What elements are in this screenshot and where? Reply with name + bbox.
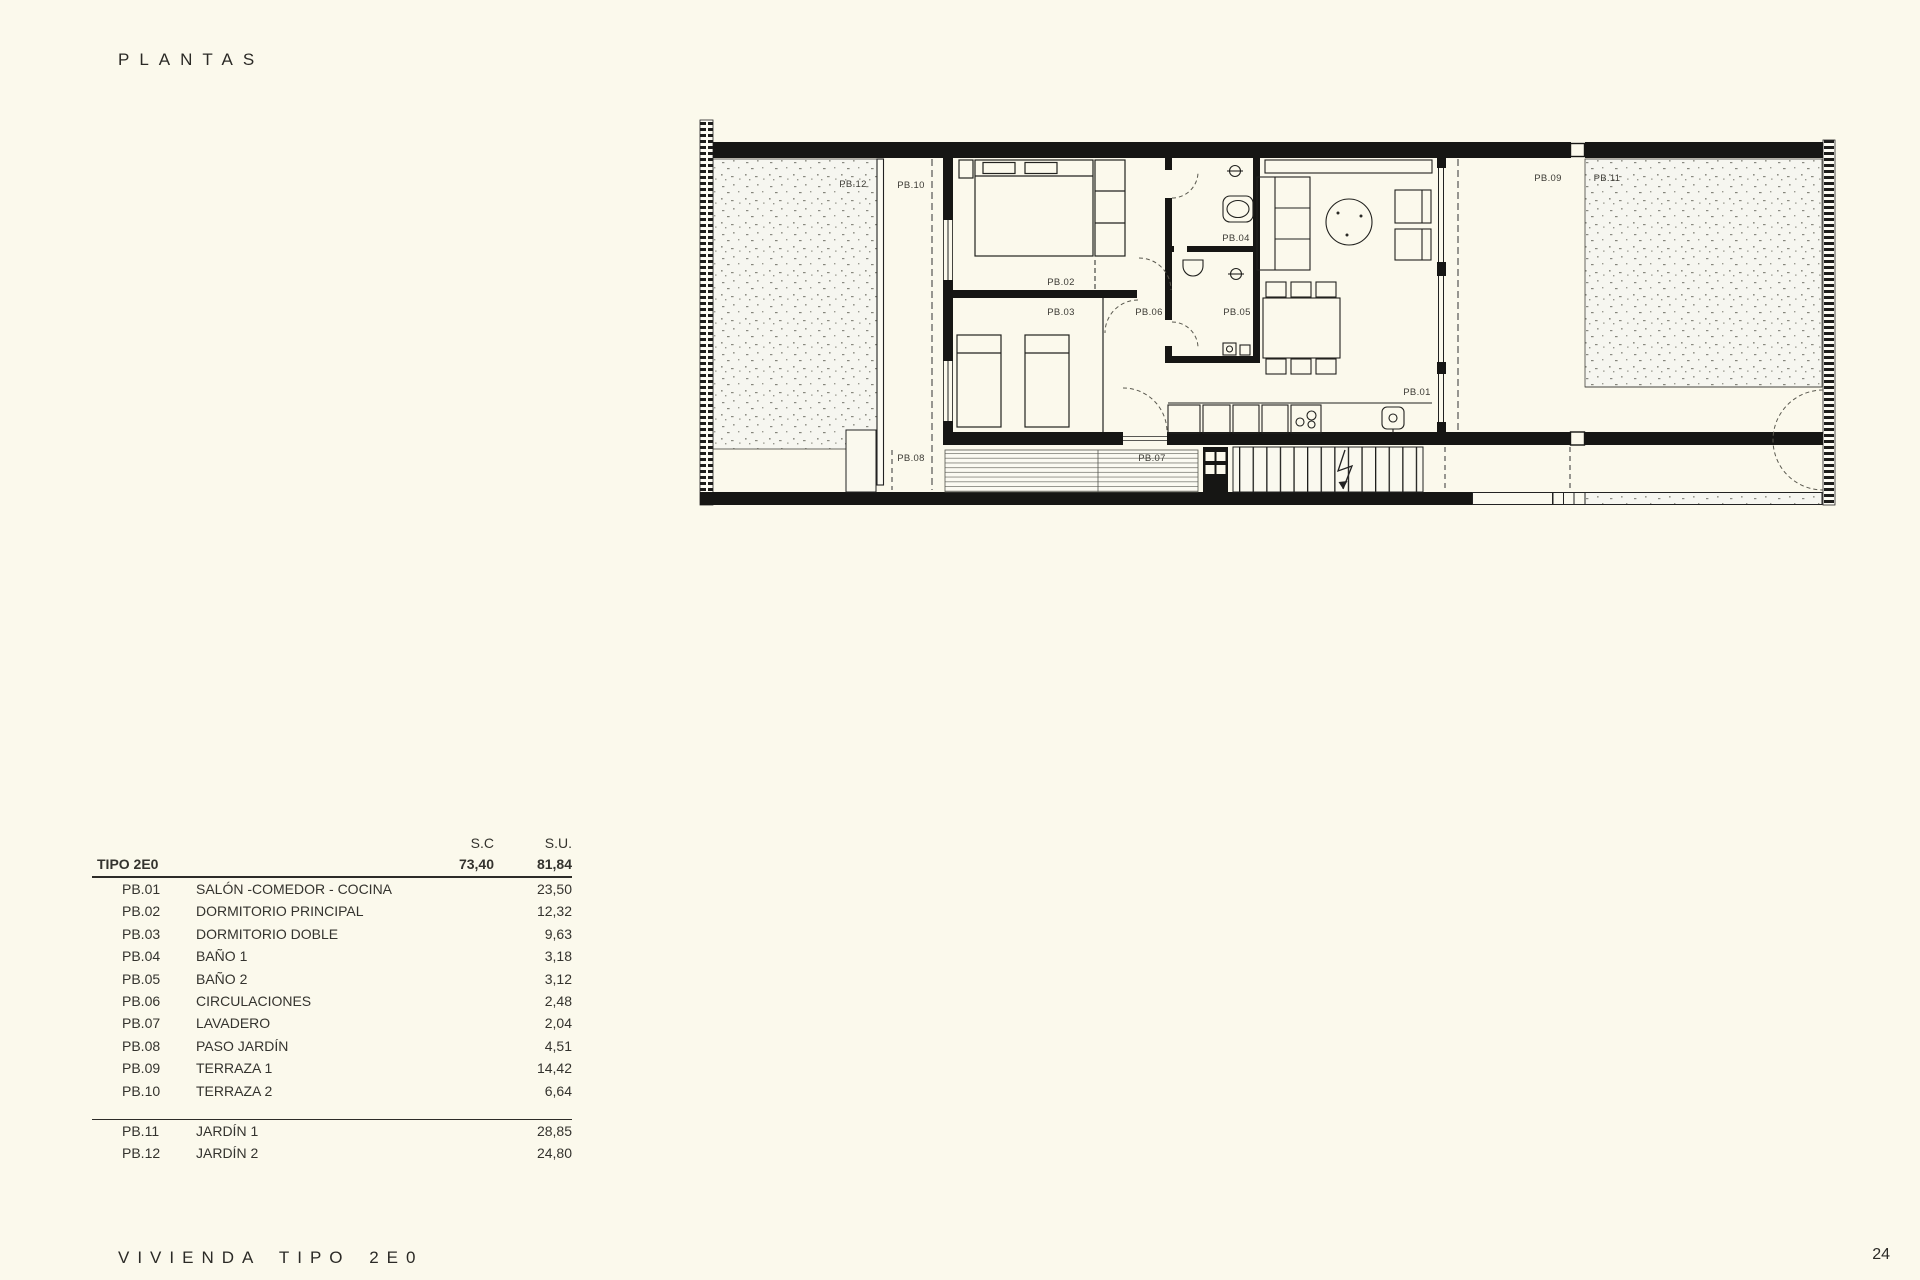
bottom-wall xyxy=(700,492,1472,505)
room-code: PB.01 xyxy=(92,878,196,900)
column-header-su: S.U. xyxy=(494,833,572,853)
room-su: 28,85 xyxy=(494,1120,572,1142)
room-su: 6,64 xyxy=(494,1080,572,1102)
room-sc xyxy=(404,1120,494,1142)
bed-double xyxy=(959,160,1093,256)
room-sc xyxy=(404,1080,494,1102)
bottom-strip xyxy=(1473,493,1553,505)
spacer xyxy=(92,833,404,853)
room-name: PASO JARDÍN xyxy=(196,1035,404,1057)
table-row: PB.03 DORMITORIO DOBLE 9,63 xyxy=(92,923,572,945)
planter xyxy=(846,430,876,492)
living-furniture xyxy=(1257,160,1432,374)
room-code: PB.10 xyxy=(92,1080,196,1102)
floor-plan-drawing: PB.12 PB.10 PB.02 PB.03 PB.06 PB.04 PB.0… xyxy=(695,110,1840,515)
room-name: BAÑO 2 xyxy=(196,968,404,990)
page-title: PLANTAS xyxy=(118,50,264,70)
table-row: PB.07 LAVADERO 2,04 xyxy=(92,1012,572,1034)
room-name: TERRAZA 1 xyxy=(196,1057,404,1079)
room-code: PB.06 xyxy=(92,990,196,1012)
room-su: 3,12 xyxy=(494,968,572,990)
house-left-wall xyxy=(943,158,953,445)
entry-door-opening xyxy=(1123,432,1167,445)
room-label-pb02: PB.02 xyxy=(1047,277,1074,288)
pillar-top xyxy=(1571,144,1585,157)
table-row: PB.06 CIRCULACIONES 2,48 xyxy=(92,990,572,1012)
room-code: PB.04 xyxy=(92,945,196,967)
room-sc xyxy=(404,1142,494,1164)
room-sc xyxy=(404,1035,494,1057)
floor-plan-svg: PB.12 PB.10 PB.02 PB.03 PB.06 PB.04 PB.0… xyxy=(695,110,1840,515)
room-code: PB.08 xyxy=(92,1035,196,1057)
closet xyxy=(1095,160,1125,256)
column-header-sc: S.C xyxy=(404,833,494,853)
room-name: DORMITORIO PRINCIPAL xyxy=(196,900,404,922)
room-code: PB.03 xyxy=(92,923,196,945)
room-label-pb03: PB.03 xyxy=(1047,307,1074,318)
type-sc-total: 73,40 xyxy=(404,853,494,876)
garden-terrace-wall xyxy=(877,159,884,485)
table-row: PB.02 DORMITORIO PRINCIPAL 12,32 xyxy=(92,900,572,922)
room-name: BAÑO 1 xyxy=(196,945,404,967)
room-su: 23,50 xyxy=(494,878,572,900)
room-su: 24,80 xyxy=(494,1142,572,1164)
room-code: PB.05 xyxy=(92,968,196,990)
room-name: TERRAZA 2 xyxy=(196,1080,404,1102)
room-label-pb07: PB.07 xyxy=(1138,453,1165,464)
table-row: PB.04 BAÑO 1 3,18 xyxy=(92,945,572,967)
bottom-strip-garden xyxy=(1585,493,1822,505)
room-sc xyxy=(404,900,494,922)
document-page: { "page": { "title": "PLANTAS", "footer_… xyxy=(0,0,1920,1280)
area-schedule-table: S.C S.U. TIPO 2E0 73,40 81,84 PB.01 SALÓ… xyxy=(92,833,572,1165)
exterior-stairs xyxy=(1233,447,1423,492)
table-row: PB.01 SALÓN -COMEDOR - COCINA 23,50 xyxy=(92,878,572,900)
type-name: TIPO 2E0 xyxy=(92,853,404,876)
garden-2-area xyxy=(713,159,877,449)
room-code: PB.02 xyxy=(92,900,196,922)
room-label-pb06: PB.06 xyxy=(1135,307,1162,318)
table-row: PB.10 TERRAZA 2 6,64 xyxy=(92,1080,572,1102)
top-wall-right xyxy=(1585,142,1823,158)
top-wall xyxy=(713,142,1571,158)
room-name: LAVADERO xyxy=(196,1012,404,1034)
room-name: JARDÍN 1 xyxy=(196,1120,404,1142)
right-fence xyxy=(1823,140,1835,505)
room-label-pb09: PB.09 xyxy=(1534,173,1561,184)
bottom-strip-cells xyxy=(1553,493,1585,505)
room-code: PB.09 xyxy=(92,1057,196,1079)
table-row: PB.11 JARDÍN 1 28,85 xyxy=(92,1120,572,1142)
beds-single xyxy=(957,335,1069,427)
room-sc xyxy=(404,990,494,1012)
room-su: 4,51 xyxy=(494,1035,572,1057)
bedroom-divider-wall xyxy=(943,290,1137,298)
room-sc xyxy=(404,945,494,967)
bath1-fixtures xyxy=(1223,166,1253,223)
room-sc xyxy=(404,968,494,990)
garden-1-area xyxy=(1585,159,1822,387)
room-label-pb11: PB.11 xyxy=(1594,173,1621,184)
room-label-pb04: PB.04 xyxy=(1222,233,1249,244)
type-su-total: 81,84 xyxy=(494,853,572,876)
window-wall-segment xyxy=(1203,447,1228,492)
table-row: PB.12 JARDÍN 2 24,80 xyxy=(92,1142,572,1164)
room-label-pb12: PB.12 xyxy=(839,179,866,190)
room-name: CIRCULACIONES xyxy=(196,990,404,1012)
room-su: 14,42 xyxy=(494,1057,572,1079)
room-label-pb10: PB.10 xyxy=(897,180,924,191)
room-code: PB.07 xyxy=(92,1012,196,1034)
room-sc xyxy=(404,1057,494,1079)
room-sc xyxy=(404,923,494,945)
house-bottom-wall xyxy=(943,432,1823,445)
room-label-pb08: PB.08 xyxy=(897,453,924,464)
room-su: 2,04 xyxy=(494,1012,572,1034)
room-name: JARDÍN 2 xyxy=(196,1142,404,1164)
schedule-type-row: TIPO 2E0 73,40 81,84 xyxy=(92,853,572,876)
house-right-glazing xyxy=(1437,158,1446,432)
page-number: 24 xyxy=(1872,1246,1890,1264)
pillar-mid xyxy=(1571,432,1585,445)
table-gap xyxy=(92,1102,572,1119)
schedule-header-row: S.C S.U. xyxy=(92,833,572,853)
table-marks xyxy=(1337,212,1363,237)
room-su: 2,48 xyxy=(494,990,572,1012)
room-label-pb05: PB.05 xyxy=(1223,307,1250,318)
kitchen-counter xyxy=(1168,403,1432,433)
room-su: 12,32 xyxy=(494,900,572,922)
table-row: PB.05 BAÑO 2 3,12 xyxy=(92,968,572,990)
room-code: PB.12 xyxy=(92,1142,196,1164)
room-code: PB.11 xyxy=(92,1120,196,1142)
table-row: PB.09 TERRAZA 1 14,42 xyxy=(92,1057,572,1079)
room-sc xyxy=(404,878,494,900)
bathroom-block xyxy=(1165,158,1260,363)
footer-title: VIVIENDA TIPO 2E0 xyxy=(118,1248,423,1268)
room-label-pb01: PB.01 xyxy=(1403,387,1430,398)
table-row: PB.08 PASO JARDÍN 4,51 xyxy=(92,1035,572,1057)
room-su: 9,63 xyxy=(494,923,572,945)
room-name: DORMITORIO DOBLE xyxy=(196,923,404,945)
room-sc xyxy=(404,1012,494,1034)
room-su: 3,18 xyxy=(494,945,572,967)
left-fence xyxy=(700,120,713,505)
room-name: SALÓN -COMEDOR - COCINA xyxy=(196,878,404,900)
